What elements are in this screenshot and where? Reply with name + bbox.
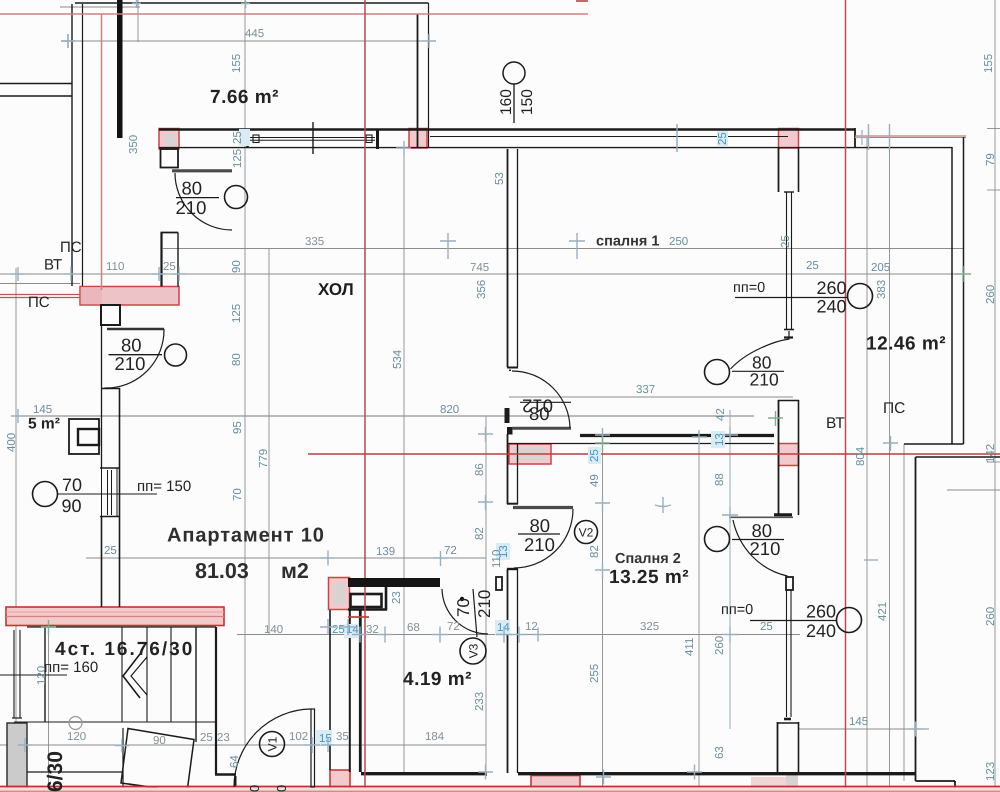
svg-text:пп= 150: пп= 150 [137, 478, 191, 495]
svg-text:779: 779 [258, 449, 270, 468]
svg-text:пп=0: пп=0 [733, 280, 765, 296]
svg-text:350: 350 [128, 135, 140, 154]
svg-text:383: 383 [876, 280, 888, 299]
svg-text:ПС: ПС [60, 239, 82, 256]
svg-text:25: 25 [200, 732, 213, 744]
svg-text:205: 205 [871, 262, 890, 274]
svg-text:72: 72 [447, 621, 460, 633]
svg-text:337: 337 [636, 384, 655, 396]
svg-text:95: 95 [232, 421, 244, 434]
svg-text:80: 80 [529, 403, 550, 424]
svg-text:110: 110 [106, 261, 124, 273]
svg-text:53: 53 [494, 172, 506, 185]
svg-text:820: 820 [440, 404, 459, 416]
svg-text:13.25 m²: 13.25 m² [609, 567, 689, 588]
svg-text:23: 23 [391, 591, 403, 604]
svg-text:80: 80 [182, 178, 203, 199]
svg-text:70: 70 [62, 475, 82, 495]
svg-text:155: 155 [231, 54, 243, 73]
svg-text:160: 160 [498, 89, 515, 115]
svg-text:V3: V3 [467, 643, 481, 658]
svg-text:25: 25 [717, 132, 729, 145]
svg-text:72: 72 [444, 545, 457, 557]
svg-text:145: 145 [849, 716, 868, 728]
svg-text:42: 42 [715, 408, 727, 421]
svg-text:250: 250 [669, 236, 688, 248]
svg-text:79: 79 [985, 153, 997, 166]
svg-text:80: 80 [530, 515, 551, 536]
svg-text:145: 145 [33, 404, 52, 416]
svg-text:V1: V1 [266, 736, 280, 751]
svg-text:123: 123 [985, 762, 997, 781]
svg-text:25: 25 [760, 621, 773, 633]
svg-text:25: 25 [780, 235, 792, 248]
svg-text:86: 86 [474, 463, 486, 476]
svg-text:35: 35 [336, 731, 349, 743]
svg-text:804: 804 [855, 446, 867, 466]
svg-text:ХОЛ: ХОЛ [318, 280, 354, 299]
svg-text:64: 64 [229, 755, 241, 768]
svg-text:25: 25 [332, 624, 345, 636]
svg-text:233: 233 [474, 692, 486, 711]
svg-text:49: 49 [589, 474, 601, 487]
svg-text:155: 155 [983, 54, 995, 73]
svg-text:210: 210 [750, 370, 779, 390]
svg-text:260: 260 [985, 607, 997, 626]
svg-text:м2: м2 [281, 559, 309, 583]
svg-text:81.03: 81.03 [195, 559, 249, 583]
svg-text:спалня 1: спалня 1 [596, 234, 659, 250]
svg-text:0: 0 [274, 785, 289, 792]
svg-text:325: 325 [640, 621, 659, 633]
svg-text:25: 25 [232, 131, 244, 144]
svg-text:260: 260 [806, 602, 836, 622]
svg-text:255: 255 [589, 664, 601, 683]
svg-text:4.19 m²: 4.19 m² [403, 669, 472, 690]
svg-text:25: 25 [589, 449, 601, 462]
svg-text:411: 411 [684, 638, 696, 656]
svg-text:70: 70 [232, 488, 244, 501]
svg-text:240: 240 [806, 621, 836, 641]
svg-text:пп=0: пп=0 [721, 602, 753, 618]
svg-text:140: 140 [264, 624, 283, 636]
svg-text:210: 210 [176, 197, 207, 218]
svg-text:139: 139 [376, 546, 395, 558]
svg-text:25: 25 [806, 260, 819, 272]
svg-text:пп= 160: пп= 160 [44, 659, 98, 676]
svg-text:5 m²: 5 m² [28, 416, 60, 433]
svg-text:70: 70 [454, 598, 473, 617]
svg-text:260: 260 [817, 278, 847, 298]
svg-text:125: 125 [231, 304, 243, 323]
svg-text:4ст. 16.76/30: 4ст. 16.76/30 [55, 639, 194, 660]
svg-text:63: 63 [714, 746, 726, 759]
svg-text:150: 150 [519, 89, 536, 115]
svg-text:Апартамент 10: Апартамент 10 [167, 525, 325, 547]
svg-text:80: 80 [231, 353, 243, 366]
svg-text:400: 400 [6, 433, 18, 452]
svg-text:142: 142 [985, 444, 997, 463]
svg-text:240: 240 [817, 297, 847, 317]
svg-text:88: 88 [714, 473, 726, 486]
svg-text:356: 356 [476, 280, 488, 299]
svg-text:90: 90 [153, 735, 166, 747]
svg-text:Спалня 2: Спалня 2 [615, 551, 681, 567]
svg-text:210: 210 [475, 590, 494, 618]
svg-text:25: 25 [104, 545, 117, 557]
svg-text:260: 260 [714, 636, 726, 655]
svg-text:125: 125 [232, 149, 244, 168]
svg-text:ВТ: ВТ [826, 415, 845, 432]
svg-text:ПС: ПС [28, 294, 50, 311]
svg-text:745: 745 [470, 262, 489, 274]
svg-text:82: 82 [474, 527, 486, 540]
svg-text:7.66 m²: 7.66 m² [210, 87, 279, 108]
svg-text:120: 120 [67, 731, 86, 743]
svg-text:13: 13 [498, 545, 510, 558]
svg-text:120: 120 [36, 666, 48, 685]
svg-text:534: 534 [392, 349, 404, 369]
svg-text:210: 210 [750, 538, 781, 559]
svg-text:ВТ: ВТ [44, 257, 62, 274]
svg-text:25: 25 [163, 261, 176, 273]
svg-text:102: 102 [289, 731, 308, 743]
svg-text:90: 90 [231, 260, 243, 273]
svg-text:23: 23 [217, 732, 230, 744]
svg-text:421: 421 [877, 602, 889, 621]
svg-text:ПС: ПС [883, 400, 905, 417]
svg-text:335: 335 [305, 236, 324, 248]
svg-text:15: 15 [319, 733, 332, 745]
svg-text:260: 260 [985, 285, 997, 304]
svg-text:12: 12 [525, 621, 538, 633]
svg-text:445: 445 [245, 28, 264, 40]
svg-text:210: 210 [115, 353, 146, 374]
svg-text:90: 90 [62, 496, 82, 516]
svg-text:82: 82 [589, 545, 601, 558]
svg-text:210: 210 [524, 534, 555, 555]
svg-text:0: 0 [247, 785, 262, 792]
svg-text:6/30: 6/30 [44, 751, 67, 792]
svg-text:184: 184 [425, 731, 445, 743]
svg-text:V2: V2 [579, 526, 594, 540]
svg-text:12.46 m²: 12.46 m² [866, 334, 946, 355]
svg-text:68: 68 [407, 622, 420, 634]
